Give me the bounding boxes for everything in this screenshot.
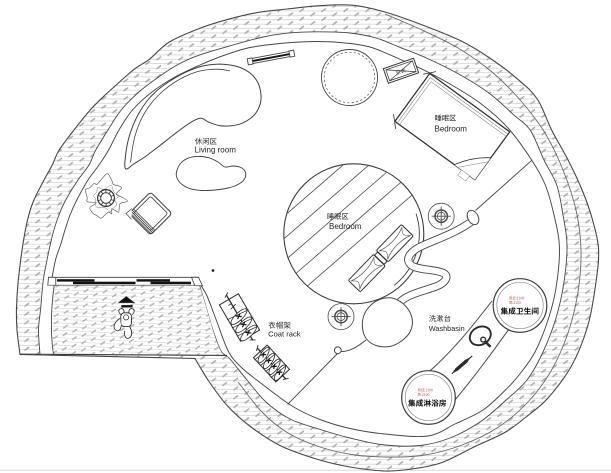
svg-text:Coat rack: Coat rack — [268, 330, 301, 339]
svg-text:Bedroom: Bedroom — [329, 222, 362, 231]
svg-text:Bedroom: Bedroom — [435, 124, 468, 133]
svg-text:Living room: Living room — [195, 146, 237, 155]
svg-text:Washbasin: Washbasin — [429, 324, 465, 333]
